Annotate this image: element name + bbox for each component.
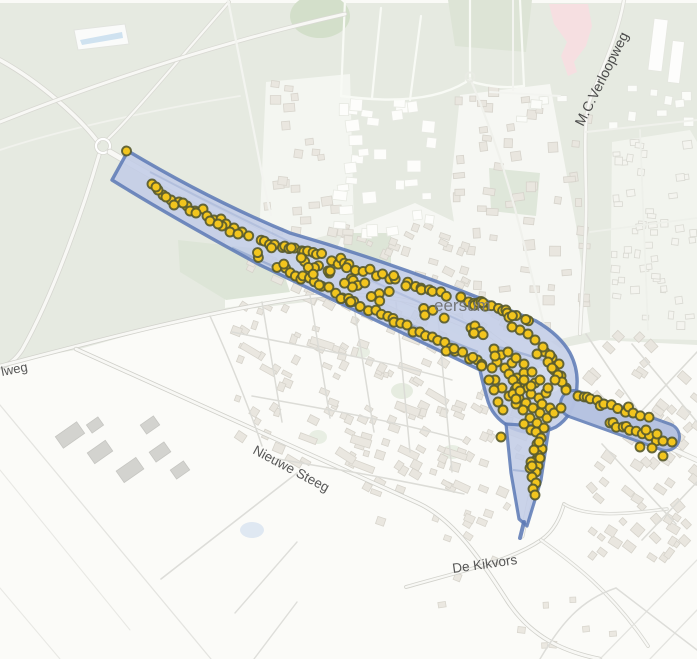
svg-text:eersum: eersum [434,296,491,315]
